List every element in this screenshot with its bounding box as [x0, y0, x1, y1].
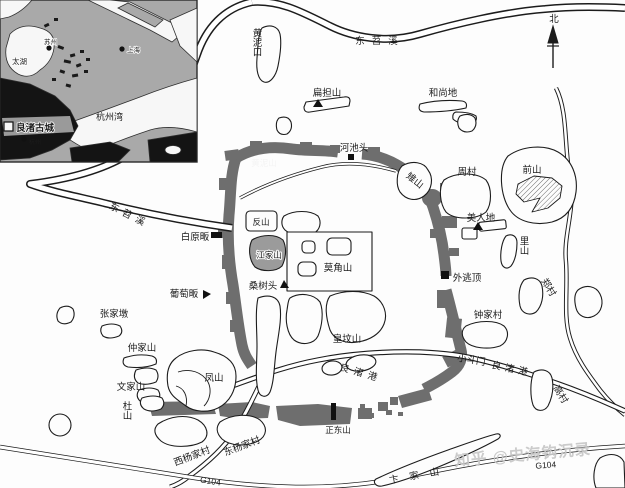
label-huangnikou: 黄泥口	[251, 27, 263, 56]
inset-label-hangzhou: 杭州	[29, 138, 41, 146]
xiyangjiacun-hill	[155, 417, 207, 447]
mojiaoshan-mound-3	[298, 262, 316, 276]
label-putaofan: 葡萄畈	[170, 288, 199, 300]
marker-putaofan	[203, 290, 211, 299]
gaocun-hill	[531, 370, 553, 410]
small-hill-north	[276, 117, 291, 134]
label-zhongjiacun: 钟家村	[474, 309, 503, 321]
label-zhangjiadun: 张家墩	[100, 308, 129, 320]
map-canvas: 北 东苕溪 黄泥口 扁担山 和尚地 河池头 黄泥山 雉山 周村 前山 美人地 里…	[0, 0, 625, 488]
corner-hill-se	[594, 455, 625, 488]
marker-baiyuanfan	[211, 232, 222, 238]
inset-suzhou-dot	[46, 45, 51, 50]
huangfenshan-hill-w	[286, 295, 322, 344]
label-jiangjiashan: 江家山	[256, 250, 282, 260]
label-huangnishan: 黄泥山	[251, 158, 277, 168]
north-arrow-head	[548, 26, 558, 43]
label-fanshan: 反山	[252, 217, 269, 227]
mojiaoshan-mound-1	[302, 241, 315, 253]
inset-hangzhou-dot	[21, 136, 26, 141]
biandanshan-hill	[304, 97, 350, 112]
east-hill	[575, 287, 602, 318]
label-dushan: 杜山	[121, 400, 133, 420]
label-liangzhugang-right: 良渚港	[491, 359, 533, 379]
label-mojiaoshan: 莫角山	[324, 262, 353, 274]
label-fengshan: 凤山	[204, 373, 223, 384]
lishan-hill	[501, 235, 517, 268]
label-biandanshan: 扁担山	[313, 87, 342, 99]
heshangdi-hill-1	[419, 100, 466, 112]
label-heshangdi: 和尚地	[429, 87, 458, 99]
marker-zhengdongshan	[331, 403, 336, 420]
wall-north-1	[236, 148, 338, 158]
label-baiyuanfan: 白原畈	[181, 231, 210, 243]
label-huangfenshan: 皇坟山	[333, 333, 362, 345]
north-arrow	[547, 26, 559, 68]
label-zhengdongshan: 正东山	[325, 425, 351, 435]
label-waitaoding: 外逃顶	[453, 272, 482, 284]
label-dongtiaoxi-top: 东苕溪	[355, 35, 405, 47]
label-sangshutou: 桑树头	[249, 280, 278, 292]
wall-south-c	[276, 404, 352, 426]
liangzhu-site-map: 北 东苕溪 黄泥口 扁担山 和尚地 河池头 黄泥山 雉山 周村 前山 美人地 里…	[0, 0, 625, 488]
zhangjiadun-hill-1	[57, 306, 74, 324]
sangshutou-hill	[256, 296, 280, 396]
small-hill-zhoucun-n	[458, 114, 476, 132]
zhangjiadun-hill-2	[101, 324, 122, 338]
inset-label-shanghai: 上海	[127, 45, 141, 54]
hill-above-mojiaoshan	[282, 212, 320, 235]
inset-liangzhu-marker	[4, 122, 13, 131]
inset-se-inlet	[165, 146, 181, 155]
label-g104-left: G104	[199, 474, 221, 487]
label-qianshan: 前山	[522, 164, 541, 176]
inset-label-taihu: 太湖	[12, 56, 27, 66]
inset-label-liangzhu: 良渚古城	[16, 122, 55, 134]
label-north: 北	[549, 14, 559, 25]
label-zhoucun: 周村	[457, 166, 477, 178]
label-hechitou: 河池头	[340, 142, 369, 154]
inset-label-suzhou: 苏州	[44, 37, 57, 46]
inset-map: 太湖 苏州 上海 杭州湾 良渚古城 杭州	[0, 0, 197, 162]
label-zhongjiashan: 仲家山	[128, 342, 157, 354]
zhoucun-hill	[440, 174, 490, 218]
marker-hechitou	[348, 154, 354, 160]
label-wenjiashan: 文家山	[117, 381, 146, 393]
zhongjiashan-hill	[123, 355, 156, 368]
label-lishan: 里山	[518, 236, 530, 255]
mojiaoshan-mound-2	[327, 238, 351, 255]
inset-label-hangzhouwan: 杭州湾	[96, 111, 123, 122]
marker-waitaoding	[441, 271, 449, 279]
inset-shanghai-dot	[119, 46, 124, 51]
label-meirendi: 美人地	[467, 212, 496, 224]
zhongjiacun-hill	[462, 322, 507, 349]
pond	[49, 414, 71, 436]
dushan-hill	[140, 396, 163, 411]
